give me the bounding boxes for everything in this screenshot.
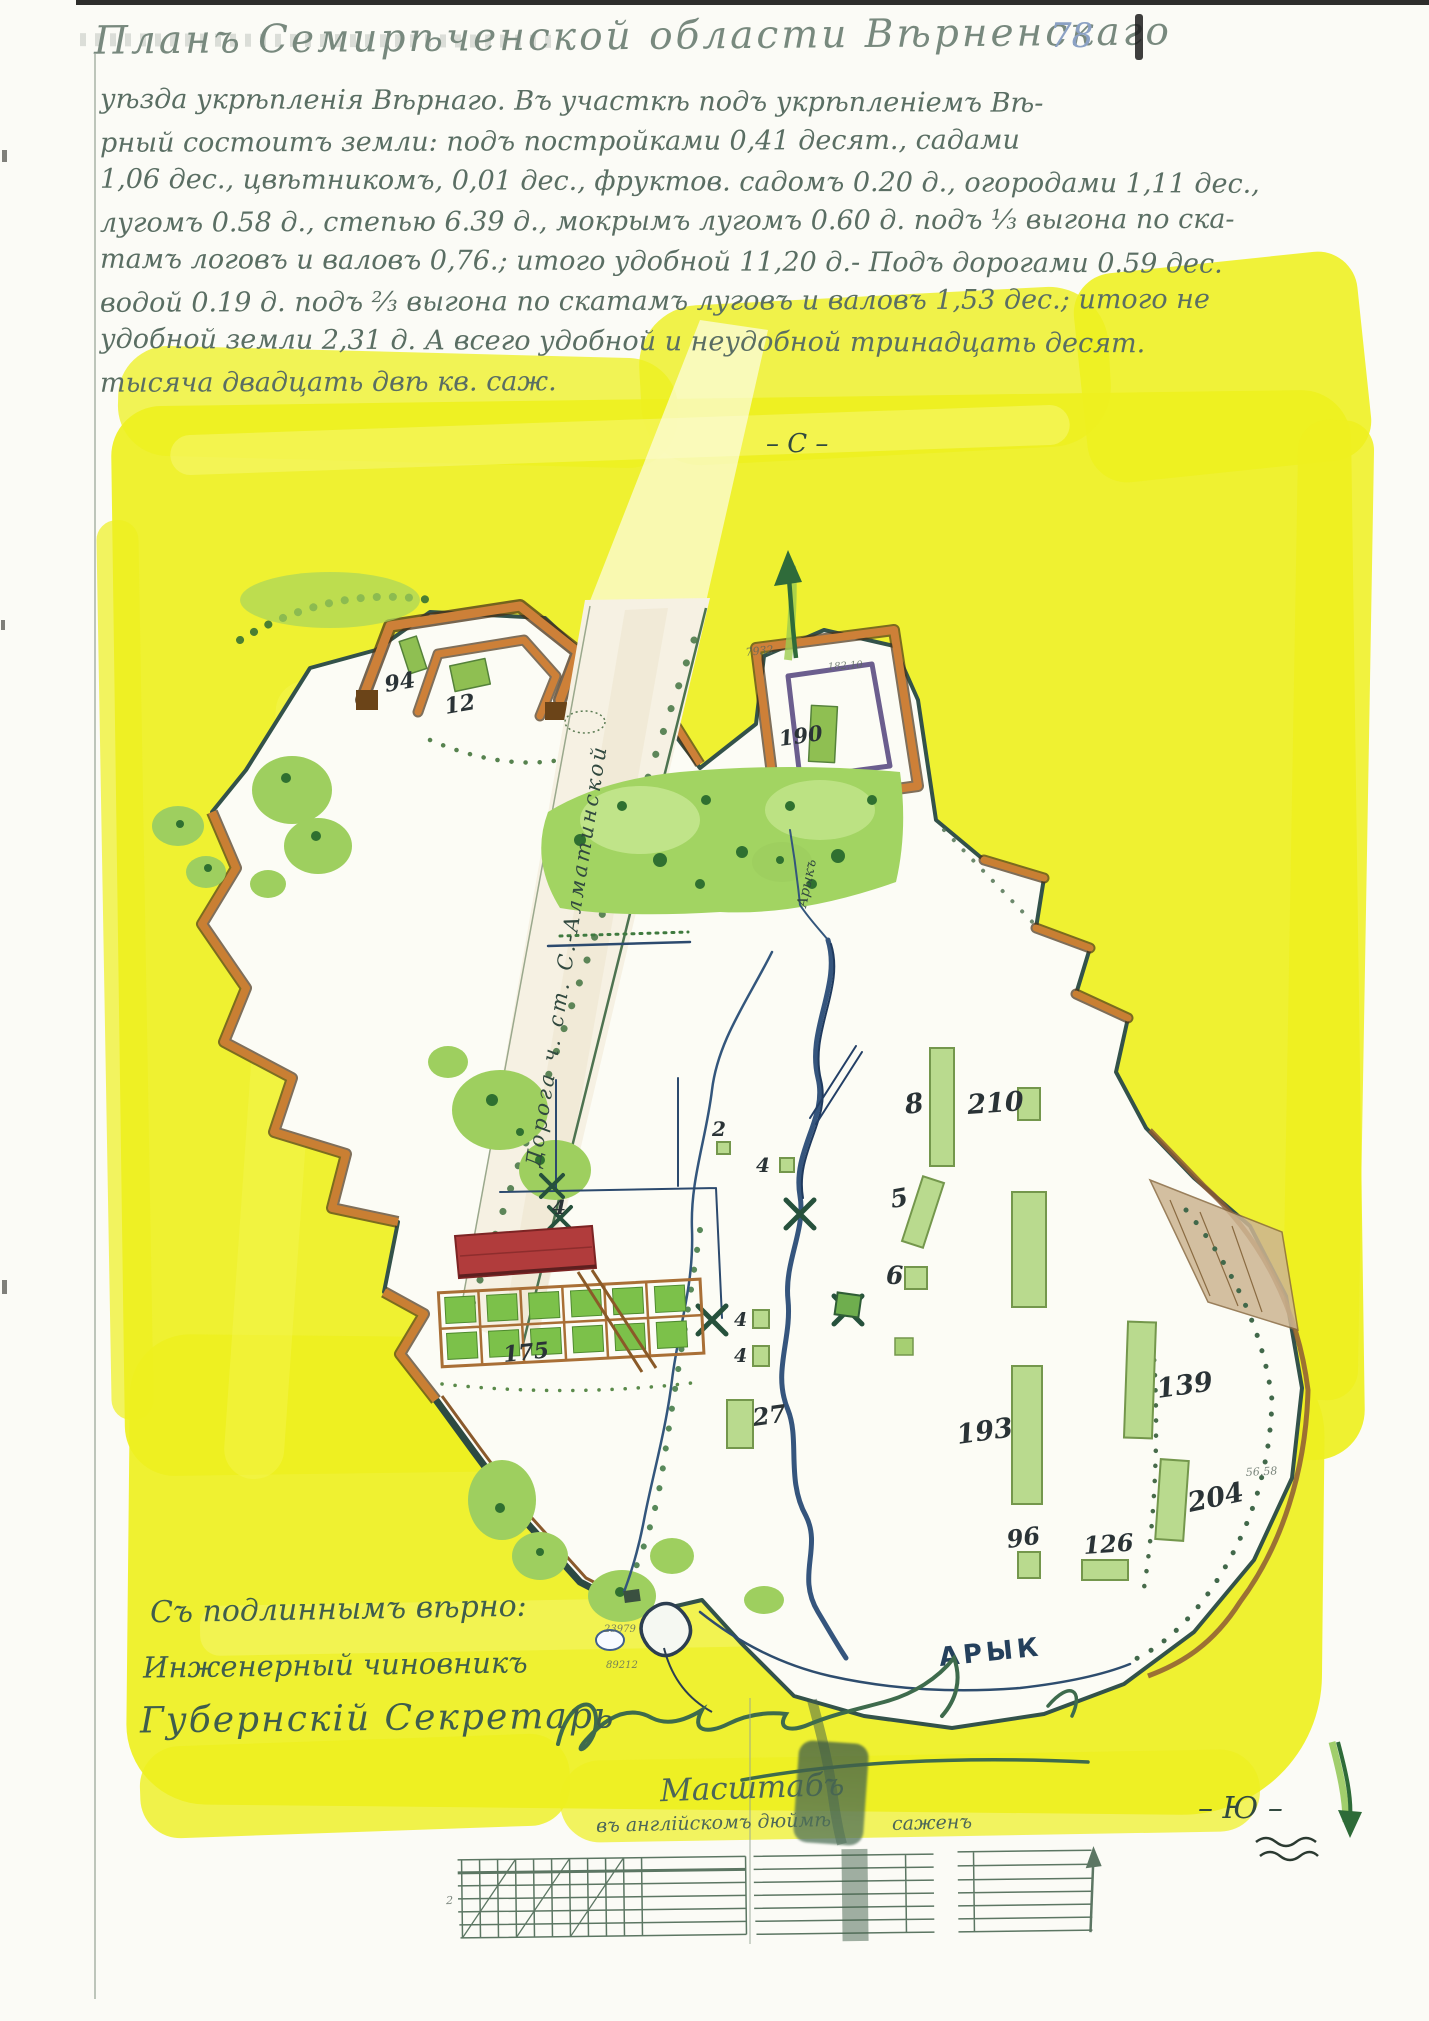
certification-line-2: Инженерный чиновникъ — [143, 1645, 528, 1684]
description-line: тысяча двадцать двѣ кв. саж. — [100, 360, 1120, 404]
plot-bar-139 — [1124, 1322, 1156, 1439]
plot-bar-right — [1012, 1192, 1046, 1307]
scale-smudge — [841, 1849, 868, 1941]
south-wavy-underline — [1256, 1838, 1318, 1860]
scale-arrow-head — [1085, 1846, 1101, 1868]
plot-bar-193 — [1012, 1366, 1042, 1504]
pond-outline — [641, 1603, 691, 1655]
description-line: рный состоитъ земли: подъ постройками 0,… — [100, 120, 1120, 164]
scale-seg-c — [957, 1850, 1092, 1932]
plot-bar-204 — [1155, 1459, 1189, 1541]
scanned-map-page: – С – – Ю – Дорога ч. ст. С.-Алматинской… — [0, 0, 1429, 2021]
description-line: тамъ логовъ и валовъ 0,76.; итого удобно… — [100, 240, 1120, 284]
description-line: удобной земли 2,31 д. А всего удобной и … — [100, 320, 1120, 364]
plot-rect-2 — [717, 1142, 730, 1154]
bastion-foot — [545, 702, 567, 720]
plot-number-175: 175 — [502, 1337, 550, 1368]
bastion-foot — [356, 690, 378, 710]
micro-note-3: 89212 — [606, 1660, 638, 1671]
plot-rect-96 — [1018, 1552, 1040, 1578]
scale-tiny-mark: 2 — [445, 1894, 453, 1907]
plot-rect-4a — [780, 1158, 794, 1172]
plot-number-4b: 4 — [734, 1309, 747, 1331]
plot-number-126: 126 — [1082, 1528, 1134, 1560]
scale-caption-right: саженъ — [892, 1811, 973, 1835]
plot-number-4a: 4 — [756, 1153, 770, 1177]
plot-number-6: 6 — [886, 1261, 903, 1290]
scale-bar: 2 — [444, 1846, 1102, 1946]
scan-edge-mark — [1135, 14, 1143, 60]
plot-number-94: 94 — [383, 667, 418, 698]
page-number: 78 — [1050, 16, 1093, 56]
micro-note-2: 23979 — [603, 1624, 636, 1635]
bridgehead-square — [835, 1292, 862, 1317]
description-line: 1,06 дес., цвѣтникомъ, 0,01 дес., фрукто… — [100, 160, 1120, 204]
page-title: Планъ Семирѣченской области Вѣрненскаго — [94, 9, 1172, 63]
plot-rect-4b — [753, 1310, 769, 1328]
plot-bar-8 — [930, 1048, 954, 1166]
plot-rect-6 — [905, 1267, 927, 1289]
micro-note-4: 56.58 — [1245, 1464, 1277, 1479]
plot-rect-27 — [727, 1400, 753, 1448]
south-arrow — [1332, 1742, 1362, 1838]
plot-number-12: 12 — [443, 689, 478, 720]
plot-number-2: 2 — [711, 1117, 726, 1141]
north-label: – С – — [766, 429, 828, 459]
plot-number-4c: 4 — [734, 1345, 747, 1367]
certification-line-3: Губернскій Секретарь — [140, 1696, 616, 1742]
plot-number-96: 96 — [1005, 1521, 1042, 1554]
description-text: уѣзда укрѣпленія Вѣрнаго. Въ участкѣ под… — [100, 82, 1120, 402]
description-line: водой 0.19 д. подъ ⅔ выгона по скатамъ л… — [100, 280, 1120, 324]
description-line: уѣзда укрѣпленія Вѣрнаго. Въ участкѣ под… — [100, 80, 1120, 124]
plot-number-27: 27 — [750, 1399, 788, 1433]
certification-line-1: Съ подлиннымъ вѣрно: — [150, 1589, 527, 1631]
south-label: – Ю – — [1198, 1791, 1283, 1826]
plot-number-4-building: 4 — [552, 1195, 566, 1219]
plot-bar-126 — [1082, 1560, 1128, 1580]
ink-smudge-over-caption — [793, 1740, 870, 1847]
plot-number-210: 210 — [965, 1086, 1025, 1121]
plot-rect-4c — [753, 1346, 769, 1366]
description-line: лугомъ 0.58 д., степью 6.39 д., мокрымъ … — [100, 200, 1120, 244]
